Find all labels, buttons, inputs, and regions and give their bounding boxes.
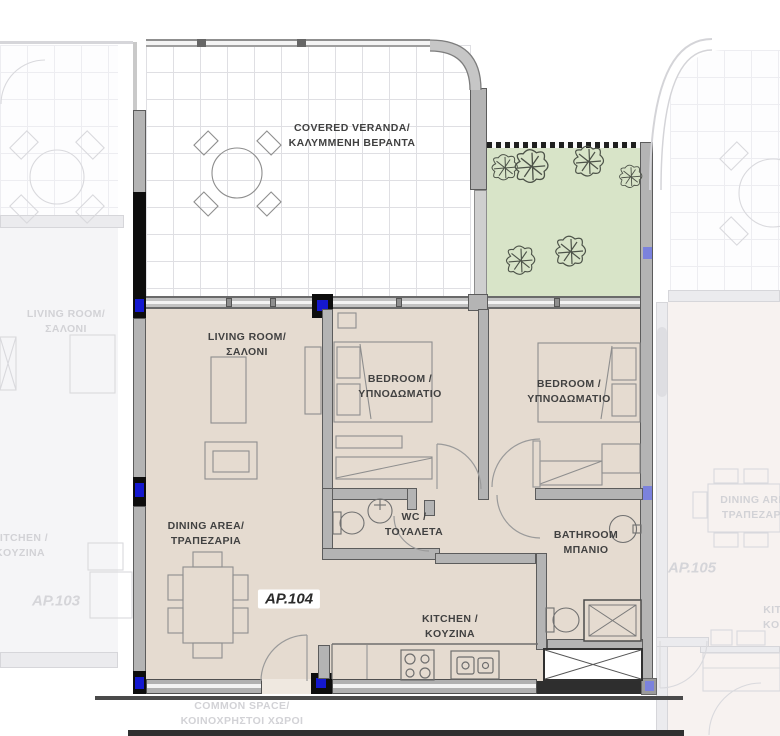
room-label-living-gr: ΣΑΛΟΝΙ [226,346,268,358]
room-label-kitchen: KITCHEN / KOYZINA [422,612,478,642]
neighbor-left-living-en: LIVING ROOM/ [27,308,105,320]
room-label-bedroom1-gr: ΥΠΝΟΔΩΜΑΤΙΟ [358,388,441,400]
wall-kitchen-top [435,553,536,564]
neighbor-right-dining-label: DINING AREA ΤΡΑΠΕΖΑΡΙΑ [720,493,780,523]
neighbor-right-window-band [668,290,780,302]
neighbor-left-wall-bottom [0,652,118,668]
common-space-en: COMMON SPACE/ [194,700,289,712]
neighbor-right-kitchen-en: KITCHEN [763,604,780,616]
neighbor-left-living-gr: ΣΑΛΟΝΙ [45,323,87,335]
common-space-label: COMMON SPACE/ ΚΟΙΝΟΧΡΗΣΤΟΙ ΧΩΡΟΙ [181,699,304,729]
wall-pier-bottom [474,190,487,296]
column-marker-faded [645,681,654,691]
room-label-veranda: COVERED VERANDA/ ΚΑΛΥΜΜΕΝΗ ΒΕΡΑΝΤΑ [289,121,416,151]
common-space-gr: ΚΟΙΝΟΧΡΗΣΤΟΙ ΧΩΡΟΙ [181,715,304,727]
wall-wc-bottom [322,548,440,560]
wall-left [133,506,146,672]
wall-bottom-dark [537,681,643,694]
neighbor-left-id: AP.103 [25,592,87,611]
neighbor-left-wall [0,215,124,228]
wall-pier-top [470,88,487,190]
room-label-bathroom: BATHROOM ΜΠΑΝΙΟ [554,528,618,558]
window-wall [146,296,643,309]
wall-bottom [146,679,262,694]
neighbor-right-dining-en: DINING AREA [720,494,780,506]
room-label-bedroom1-en: BEDROOM / [368,373,432,385]
window-mullion [396,298,402,307]
room-label-bedroom1: BEDROOM / ΥΠΝΟΔΩΜΑΤΙΟ [358,372,441,402]
room-label-dining-gr: ΤΡΑΠΕΖΑΡΙΑ [171,535,241,547]
wall-bathroom-top [535,488,643,500]
neighbor-left-floor [0,228,118,652]
wall-bottom [332,679,537,694]
wall-tick [197,39,206,47]
room-label-bedroom2: BEDROOM / ΥΠΝΟΔΩΜΑΤΙΟ [527,377,610,407]
apartment-id-badge: AP.104 [258,590,320,609]
entry-threshold [262,679,311,694]
room-label-kitchen-gr: KOYZINA [425,628,475,640]
wall-wc-stub [407,488,417,510]
column-marker [316,678,326,688]
room-label-veranda-gr: ΚΑΛΥΜΜΕΝΗ ΒΕΡΑΝΤΑ [289,137,416,149]
wall-left [133,110,146,194]
wall-living-bedroom1 [322,309,333,489]
wall-left [133,318,146,478]
neighbor-right-kitchen-label: KITCHEN KOYZINA [763,603,780,633]
neighbor-left-kitchen-label: KITCHEN / KOYZINA [0,531,48,561]
neighbor-left-veranda [0,45,118,215]
room-label-bathroom-en: BATHROOM [554,529,618,541]
window-mullion [554,298,560,307]
room-label-wc-en: WC / [402,511,427,523]
veranda-tiles [146,45,471,296]
column-marker [135,299,144,312]
neighbor-left-top-wall-line [0,41,133,44]
service-shaft [543,648,643,681]
room-label-living: LIVING ROOM/ ΣΑΛΟΝΙ [208,330,286,360]
garden-area [487,148,640,296]
window-mullion [226,298,232,307]
room-label-wc: WC / ΤΟΥΑΛΕΤΑ [385,510,443,540]
column-marker [135,677,144,689]
neighbor-left-kitchen-gr: KOYZINA [0,547,45,559]
room-label-bathroom-gr: ΜΠΑΝΙΟ [564,544,609,556]
window-mullion [270,298,276,307]
neighbor-right-kitchen-gr: KOYZINA [763,619,780,631]
column-marker-faded [643,247,652,259]
neighbor-right-wall-kitchen [700,646,780,653]
neighbor-right-veranda [670,50,780,290]
wall-bedroom1-bedroom2 [478,309,489,500]
floor-plan: COVERED VERANDA/ ΚΑΛΥΜΜΕΝΗ ΒΕΡΑΝΤΑ LIVIN… [0,0,780,736]
divider-strip [657,327,667,397]
neighbor-left-kitchen-en: KITCHEN / [0,532,48,544]
wall-wc-top [330,488,412,500]
room-label-wc-gr: ΤΟΥΑΛΕΤΑ [385,526,443,538]
room-label-dining-en: DINING AREA/ [168,520,245,532]
room-label-living-en: LIVING ROOM/ [208,331,286,343]
room-label-dining: DINING AREA/ ΤΡΑΠΕΖΑΡΙΑ [168,519,245,549]
wall-kitchen-bath [536,553,547,650]
neighbor-right-dining-gr: ΤΡΑΠΕΖΑΡΙΑ [722,509,780,521]
column-marker [135,483,144,497]
room-label-kitchen-en: KITCHEN / [422,613,478,625]
neighbor-left-living-label: LIVING ROOM/ ΣΑΛΟΝΙ [27,307,105,337]
wall-left-thin [133,42,137,110]
neighbor-right-id: AP.105 [661,559,723,578]
wall-right [640,142,653,694]
wall-entry-stub [318,645,330,679]
column-marker-faded [643,486,652,500]
room-label-veranda-en: COVERED VERANDA/ [294,122,410,134]
wall-tick [297,39,306,47]
veranda-wall-top [146,39,430,47]
room-label-bedroom2-gr: ΥΠΝΟΔΩΜΑΤΙΟ [527,393,610,405]
room-label-bedroom2-en: BEDROOM / [537,378,601,390]
